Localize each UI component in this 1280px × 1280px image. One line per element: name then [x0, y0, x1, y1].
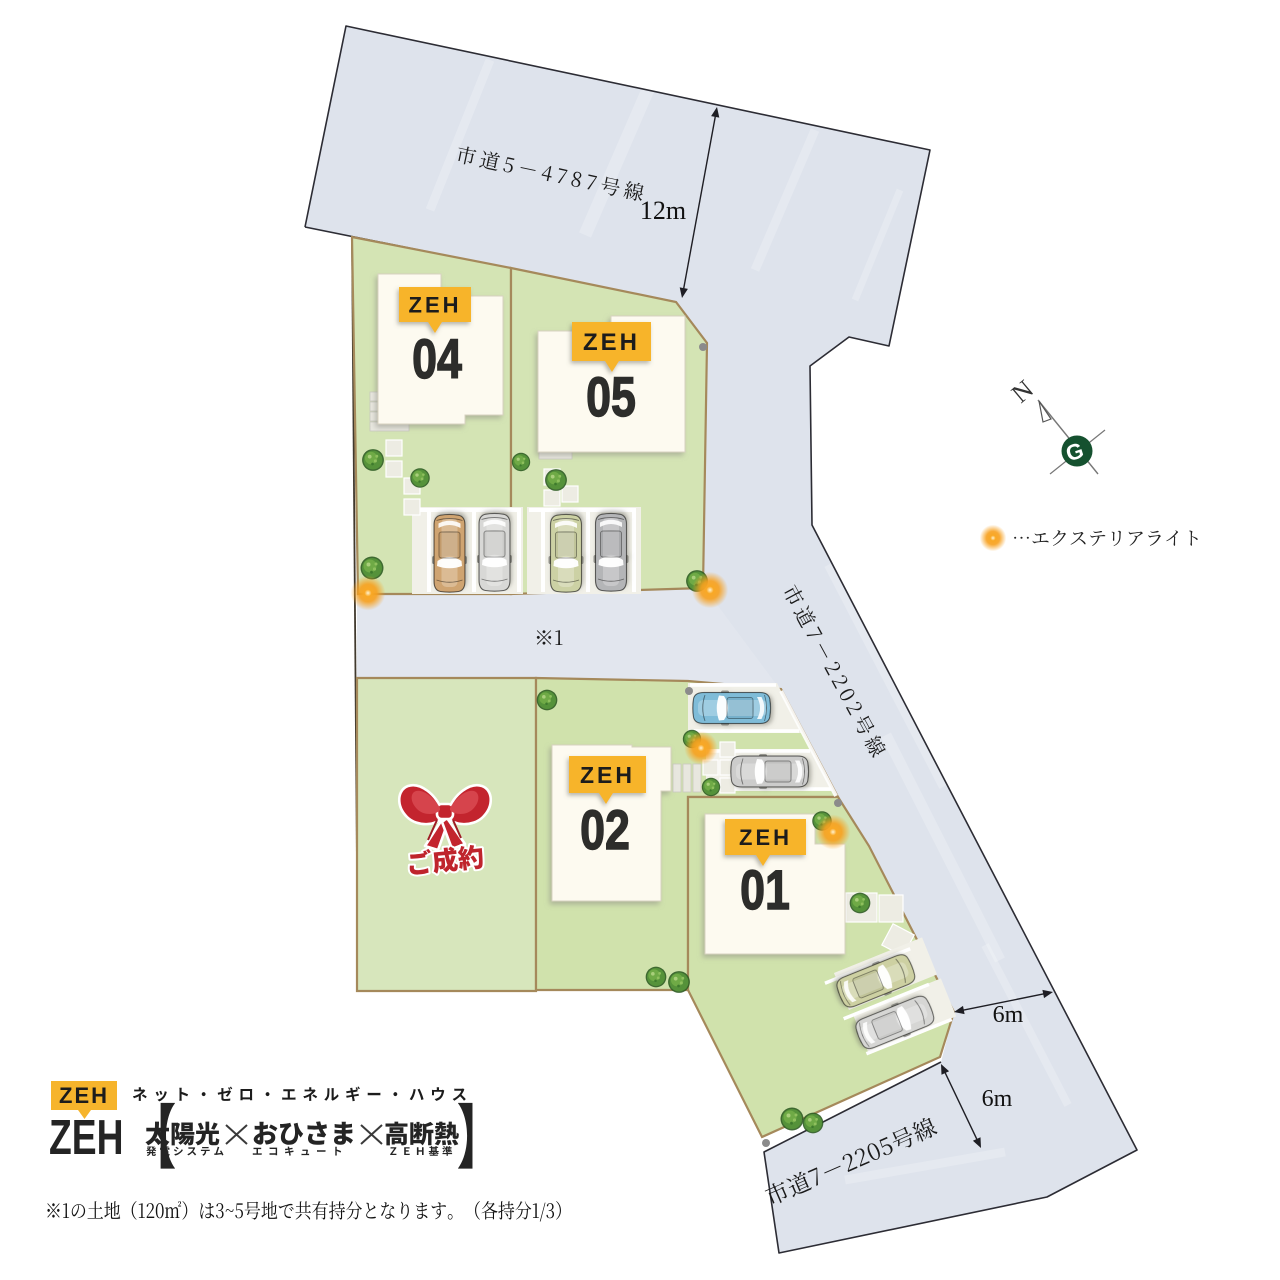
svg-text:05: 05: [586, 365, 636, 428]
svg-text:01: 01: [740, 858, 790, 921]
svg-text:ZEH: ZEH: [583, 329, 640, 356]
svg-text:ZEH: ZEH: [739, 825, 792, 850]
svg-text:ZEH: ZEH: [59, 1083, 109, 1108]
svg-text:6m: 6m: [993, 1002, 1024, 1028]
svg-text:ZEH: ZEH: [49, 1111, 123, 1165]
svg-text:12m: 12m: [640, 196, 686, 225]
svg-text:ZEH: ZEH: [409, 292, 462, 317]
svg-text:6m: 6m: [982, 1086, 1013, 1112]
svg-text:ZEH: ZEH: [580, 762, 635, 788]
svg-text:02: 02: [580, 798, 630, 861]
svg-text:04: 04: [412, 327, 462, 390]
